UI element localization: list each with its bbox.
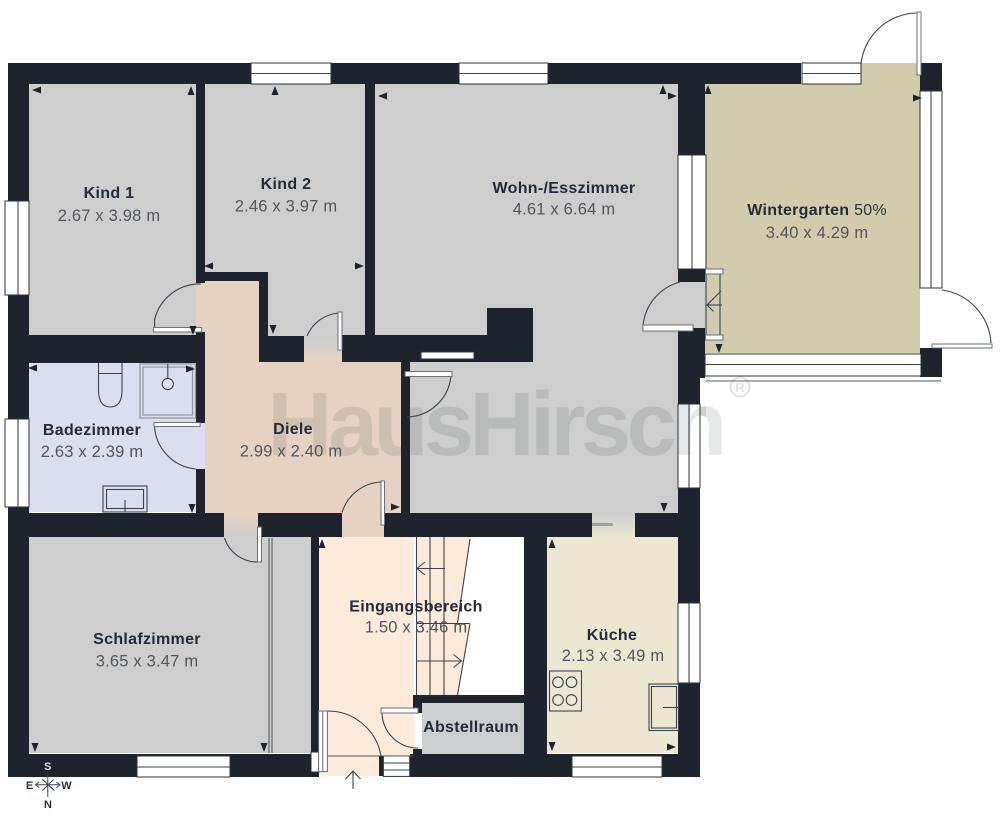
svg-text:W: W [61,780,72,792]
svg-text:4.61 x 6.64 m: 4.61 x 6.64 m [513,201,616,219]
svg-text:Eingangsbereich: Eingangsbereich [349,599,482,616]
svg-text:Schlafzimmer: Schlafzimmer [93,631,201,648]
svg-text:1.50 x 3.46 m: 1.50 x 3.46 m [365,619,468,637]
svg-text:3.65 x 3.47 m: 3.65 x 3.47 m [96,653,199,671]
svg-text:2.63 x 2.39 m: 2.63 x 2.39 m [41,443,144,461]
svg-text:Kind 2: Kind 2 [261,176,312,193]
svg-text:2.99 x 2.40 m: 2.99 x 2.40 m [240,443,343,461]
svg-text:Wohn-/Esszimmer: Wohn-/Esszimmer [493,180,636,197]
svg-text:R: R [735,380,745,395]
svg-text:3.40 x 4.29 m: 3.40 x 4.29 m [766,224,869,242]
svg-text:2.13 x 3.49 m: 2.13 x 3.49 m [562,647,665,665]
svg-text:N: N [44,799,52,811]
svg-text:Küche: Küche [587,627,637,644]
svg-text:Wintergarten 50%: Wintergarten 50% [747,202,887,219]
svg-text:Kind 1: Kind 1 [84,185,135,202]
svg-text:S: S [44,761,51,773]
svg-text:E: E [26,780,33,792]
svg-text:2.46 x 3.97 m: 2.46 x 3.97 m [235,198,338,216]
svg-text:Abstellraum: Abstellraum [423,719,519,736]
svg-text:2.67 x 3.98 m: 2.67 x 3.98 m [58,207,161,225]
svg-text:Diele: Diele [273,421,313,438]
svg-text:Badezimmer: Badezimmer [43,422,141,439]
